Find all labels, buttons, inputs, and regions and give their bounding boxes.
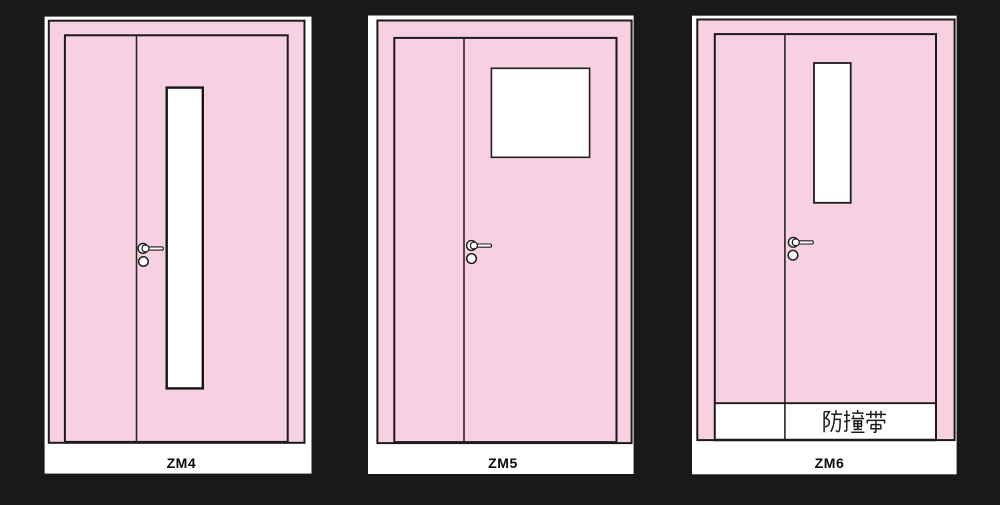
svg-text:ZM6: ZM6 <box>815 455 845 471</box>
svg-text:ZM4: ZM4 <box>167 455 197 471</box>
svg-text:ZM5: ZM5 <box>488 455 518 471</box>
